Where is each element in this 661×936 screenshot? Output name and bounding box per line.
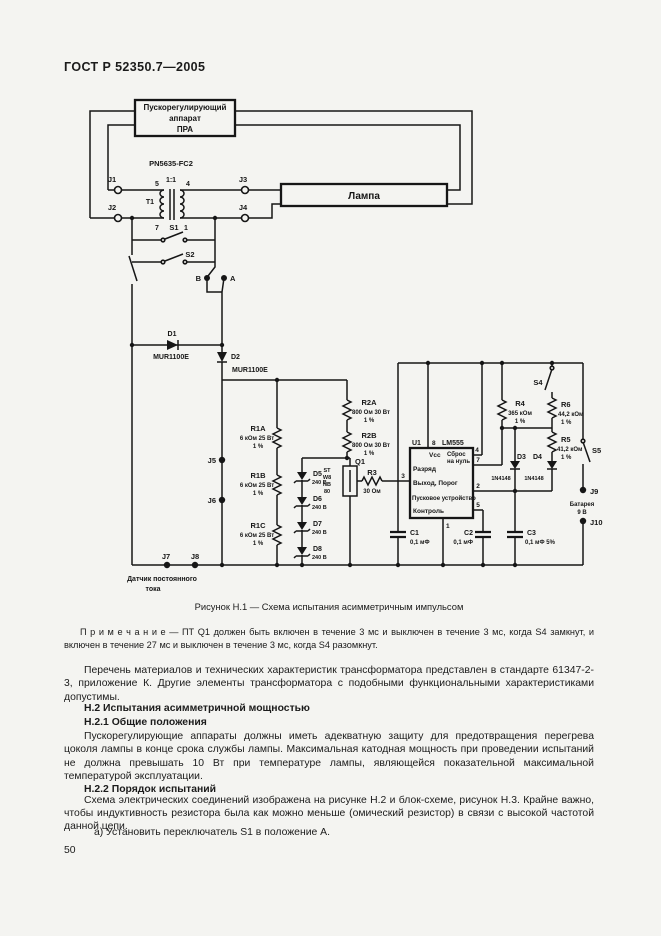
page-number: 50: [64, 845, 76, 856]
transformer-pin7-label: 7: [155, 225, 159, 232]
ballast-label-line2: аппарат: [169, 114, 201, 123]
timer-discharge-label: Разряд: [413, 466, 436, 473]
transformer-t1: PN5635-FC2 1:1 T1 5 4 7 1: [146, 159, 193, 232]
resistor-r1b-ref: R1B: [250, 471, 266, 480]
transistor-q1-part-line2: W8: [323, 475, 331, 481]
dc-sensor-label-line1: Датчик постоянного: [127, 576, 197, 583]
ballast-label-line3: ПРА: [177, 125, 193, 134]
resistor-r6-ref: R6: [561, 400, 571, 409]
timer-pin5-label: 5: [476, 502, 480, 509]
resistor-r1b-tolerance: 1 %: [253, 491, 264, 497]
timer-ref-label: U1: [412, 440, 421, 447]
terminal-j7-label: J7: [162, 552, 170, 561]
terminal-j10-label: J10: [590, 518, 603, 527]
battery-terminals: J9 J10 Батарея 9 В: [570, 487, 603, 527]
lamp-label: Лампа: [348, 191, 380, 202]
dc-sensor-terminals: J7 J8 Датчик постоянного тока: [127, 552, 199, 593]
diode-d3-part: 1N4148: [491, 476, 510, 482]
resistor-r2a-tolerance: 1 %: [364, 418, 375, 424]
junction-dots: [130, 216, 554, 567]
transformer-part-label: PN5635-FC2: [149, 159, 193, 168]
capacitor-c1-value: 0,1 мФ: [410, 540, 430, 546]
list-item-a: а) Установить переключатель S1 в положен…: [94, 827, 574, 838]
transformer-pin4-label: 4: [186, 181, 190, 188]
diode-d3-ref: D3: [517, 454, 526, 461]
ballast-label-line1: Пускорегулирующий: [144, 103, 227, 112]
terminal-j3-label: J3: [239, 175, 247, 184]
resistor-r1a: R1A 6 кОм 25 Вт 1 %: [240, 424, 274, 450]
zener-d6-ref: D6: [313, 496, 322, 503]
capacitor-c2-value: 0,1 мФ: [453, 540, 473, 546]
contact-a-label: A: [230, 274, 236, 283]
selector-contacts-ba: B A: [196, 274, 236, 283]
transformer-ratio-label: 1:1: [166, 177, 176, 184]
capacitor-c2-ref: C2: [464, 530, 473, 537]
resistor-r3-ref: R3: [367, 468, 377, 477]
resistor-r1b-value: 6 кОм 25 Вт: [240, 483, 274, 489]
capacitor-c1-ref: C1: [410, 530, 419, 537]
terminal-j2-label: J2: [108, 203, 116, 212]
capacitor-c3-value: 0,1 мФ 5%: [525, 540, 556, 546]
resistor-r1a-tolerance: 1 %: [253, 444, 264, 450]
resistor-r6-value: 44,2 кОм: [558, 412, 584, 418]
resistor-r1a-value: 6 кОм 25 Вт: [240, 436, 274, 442]
paragraph-transformer-materials: Перечень материалов и технических характ…: [64, 664, 594, 704]
battery-label-line1: Батарея: [570, 502, 595, 508]
transformer-pin1-label: 1: [184, 225, 188, 232]
transistor-q1-part-line1: ST: [323, 468, 331, 474]
resistor-r1c-value: 6 кОм 25 Вт: [240, 533, 274, 539]
dc-sensor-label-line2: тока: [145, 586, 160, 593]
switch-s2-label: S2: [185, 250, 194, 259]
ballast-box: Пускорегулирующий аппарат ПРА: [135, 100, 235, 136]
diode-d2: D2 MUR1100E: [217, 352, 268, 374]
resistor-r2a: R2A 800 Ом 30 Вт 1 % R2B 800 Ом 30 Вт 1 …: [352, 398, 390, 457]
resistor-r1c-tolerance: 1 %: [253, 541, 264, 547]
transistor-q1: Q1 ST W8 NB 80: [323, 457, 365, 496]
capacitor-c3-ref: C3: [527, 530, 536, 537]
diode-d1-ref: D1: [168, 331, 177, 338]
transformer-ref-label: T1: [146, 199, 154, 206]
lamp-box: Лампа: [281, 184, 447, 206]
timer-pin7-label: 7: [476, 457, 480, 464]
battery-label-line2: 9 В: [577, 510, 587, 516]
resistor-r1c-ref: R1C: [250, 521, 266, 530]
timer-control-label: Контроль: [413, 508, 444, 515]
zener-d7-value: 240 В: [312, 530, 327, 536]
figure-h1-schematic: Пускорегулирующий аппарат ПРА Лампа PN56…: [0, 0, 661, 600]
terminal-j1-label: J1: [108, 175, 116, 184]
terminal-j5-label: J5: [208, 456, 216, 465]
diode-d3: D3 1N4148: [491, 454, 526, 482]
transistor-q1-part-line3: NB: [323, 482, 331, 488]
resistor-r2b-tolerance: 1 %: [364, 451, 375, 457]
resistor-r4: R4 365 кОм 1 %: [508, 399, 532, 425]
zener-d6-value: 240 В: [312, 505, 327, 511]
resistor-r4-value: 365 кОм: [508, 411, 532, 417]
timer-output-threshold-label: Выход, Порог: [413, 480, 458, 487]
diode-d2-ref: D2: [231, 354, 240, 361]
timer-pin3-label: 3: [401, 473, 405, 480]
timer-pin1-label: 1: [446, 523, 450, 530]
resistor-r6: R6 44,2 кОм 1 %: [558, 400, 584, 426]
diode-d4-part: 1N4148: [524, 476, 543, 482]
resistor-r4-tolerance: 1 %: [515, 419, 526, 425]
switch-s4-label: S4: [533, 378, 543, 387]
transistor-q1-part-line4: 80: [324, 489, 330, 495]
zener-d8-ref: D8: [313, 546, 322, 553]
resistor-r2b-ref: R2B: [361, 431, 377, 440]
switch-s1-label: S1: [169, 223, 178, 232]
capacitor-c2: C2 0,1 мФ: [453, 530, 491, 546]
contact-b-label: B: [196, 274, 202, 283]
note-paragraph: П р и м е ч а н и е — ПТ Q1 должен быть …: [64, 626, 594, 652]
diode-d1-part: MUR1100E: [153, 354, 189, 361]
switch-s4: S4: [533, 366, 553, 387]
transformer-pin5-label: 5: [155, 181, 159, 188]
diode-d4-ref: D4: [533, 454, 542, 461]
resistor-r1b: R1B 6 кОм 25 Вт 1 %: [240, 471, 274, 497]
paragraph-general-provisions: Пускорегулирующие аппараты должны иметь …: [64, 730, 594, 784]
heading-h2: Н.2 Испытания асимметричной мощностью: [64, 703, 594, 714]
resistor-r1c: R1C 6 кОм 25 Вт 1 %: [240, 521, 274, 547]
heading-h21: Н.2.1 Общие положения: [64, 717, 594, 728]
resistor-r5: R5 41,2 кОм 1 %: [557, 435, 583, 461]
terminals-j1-j4: J1 J2 J3 J4: [108, 175, 249, 222]
figure-caption: Рисунок Н.1 — Схема испытания асимметрич…: [64, 601, 594, 612]
zener-d8-value: 240 В: [312, 555, 327, 561]
resistor-r5-value: 41,2 кОм: [557, 447, 583, 453]
timer-reset-label-line1: Сброс: [447, 451, 466, 458]
diode-d1: D1 MUR1100E: [153, 331, 189, 361]
resistor-r5-ref: R5: [561, 435, 571, 444]
zener-d5-ref: D5: [313, 471, 322, 478]
timer-trigger-label: Пусковое устройство: [412, 495, 476, 502]
zener-chain-d5-d8: D5 240 В D6 240 В D7 240 В D8 240 В: [294, 471, 327, 561]
capacitor-c1: C1 0,1 мФ: [390, 530, 430, 546]
resistor-r2b-value: 800 Ом 30 Вт: [352, 443, 390, 449]
timer-vcc-label: Vcc: [429, 452, 441, 459]
resistor-r3-value: 30 Ом: [363, 489, 381, 495]
timer-pin8-label: 8: [432, 440, 436, 447]
resistor-r2a-ref: R2A: [361, 398, 377, 407]
switch-s5-label: S5: [592, 446, 601, 455]
zener-d7-ref: D7: [313, 521, 322, 528]
resistor-r2a-value: 800 Ом 30 Вт: [352, 410, 390, 416]
terminal-j9-label: J9: [590, 487, 598, 496]
timer-pin4-label: 4: [475, 447, 479, 454]
timer-part-label: LM555: [442, 440, 464, 447]
terminal-j4-label: J4: [239, 203, 248, 212]
diode-d2-part: MUR1100E: [232, 367, 268, 374]
terminal-j6-label: J6: [208, 496, 216, 505]
resistor-r4-ref: R4: [515, 399, 525, 408]
timer-pin2-label: 2: [476, 483, 480, 490]
resistor-r6-tolerance: 1 %: [561, 420, 572, 426]
timer-ic-u1: U1 8 LM555 Vcc Сброс на нуль Разряд Выхо…: [401, 440, 480, 530]
resistor-r1a-ref: R1A: [250, 424, 266, 433]
resistor-r5-tolerance: 1 %: [561, 455, 572, 461]
terminal-j8-label: J8: [191, 552, 199, 561]
transistor-q1-ref: Q1: [355, 457, 365, 466]
timer-reset-label-line2: на нуль: [447, 459, 470, 465]
